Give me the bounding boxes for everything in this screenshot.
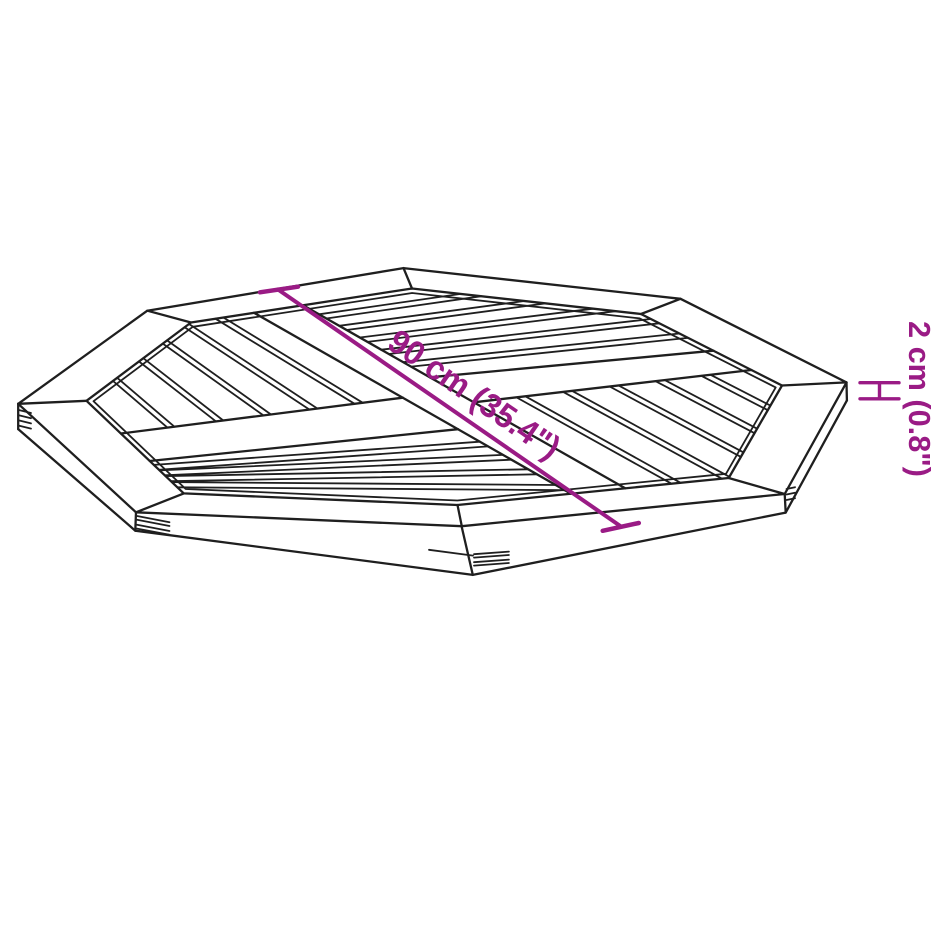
svg-text:2 cm (0.8"): 2 cm (0.8") [902,321,937,477]
